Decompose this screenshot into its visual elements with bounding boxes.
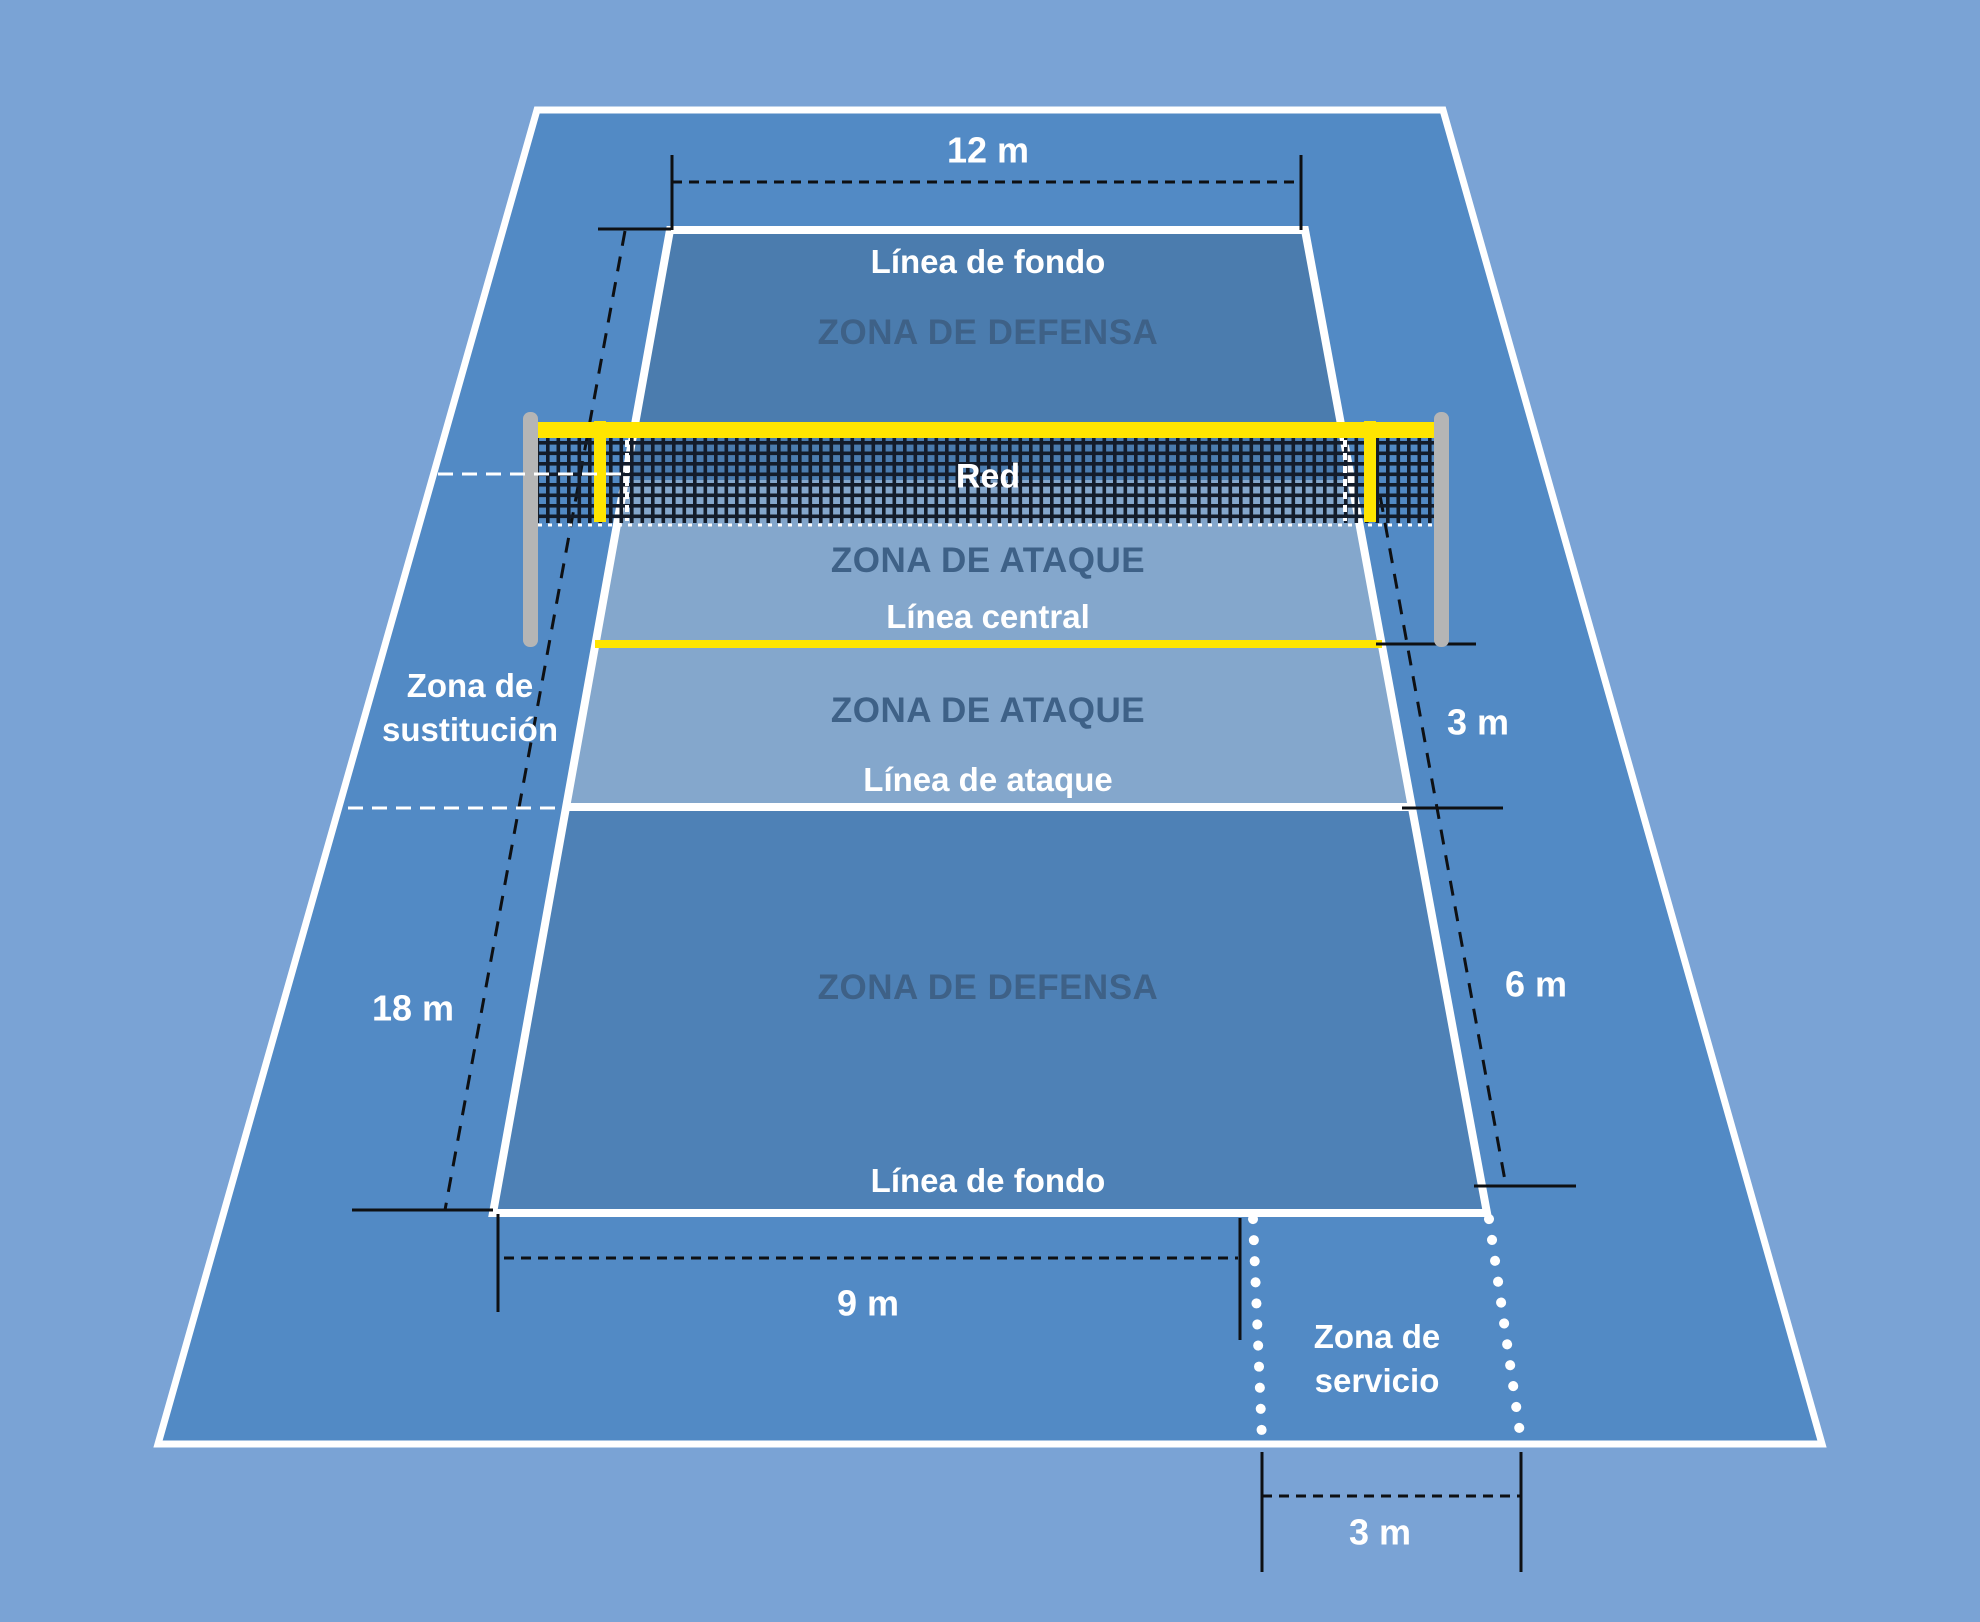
dim-label-9m: 9 m <box>837 1281 899 1324</box>
attack-line-label: Línea de ataque <box>863 760 1112 800</box>
substitution-zone-label-line2: sustitución <box>382 711 558 748</box>
service-zone-label-line2: servicio <box>1315 1362 1440 1399</box>
dim-label-3m: 3 m <box>1447 700 1509 743</box>
volleyball-court-diagram: 12 m Línea de fondo ZONA DE DEFENSA Red … <box>0 0 1980 1622</box>
dim-label-18m: 18 m <box>372 986 454 1029</box>
baseline-bottom-label: Línea de fondo <box>871 1161 1106 1201</box>
substitution-zone-label-line1: Zona de <box>407 667 534 704</box>
attack-zone-lower-label: ZONA DE ATAQUE <box>831 690 1145 732</box>
net-post-right <box>1434 412 1449 647</box>
service-zone-label-line1: Zona de <box>1314 1318 1441 1355</box>
dim-label-service-3m: 3 m <box>1349 1510 1411 1553</box>
net-antenna-right <box>1364 421 1376 522</box>
net-post-left <box>523 412 538 647</box>
defense-zone-bottom <box>493 807 1487 1213</box>
service-zone-label: Zona de servicio <box>1314 1315 1441 1403</box>
net-label: Red <box>956 457 1020 498</box>
dim-label-12m: 12 m <box>947 128 1029 171</box>
defense-zone-top-label: ZONA DE DEFENSA <box>818 312 1159 354</box>
center-line-label: Línea central <box>886 597 1090 637</box>
baseline-top-label: Línea de fondo <box>871 242 1106 282</box>
substitution-zone-label: Zona de sustitución <box>382 664 558 752</box>
dim-label-6m: 6 m <box>1505 962 1567 1005</box>
net-top-band <box>538 422 1434 438</box>
defense-zone-bottom-label: ZONA DE DEFENSA <box>818 967 1159 1009</box>
attack-zone-upper-label: ZONA DE ATAQUE <box>831 540 1145 582</box>
net-antenna-left <box>594 421 606 522</box>
